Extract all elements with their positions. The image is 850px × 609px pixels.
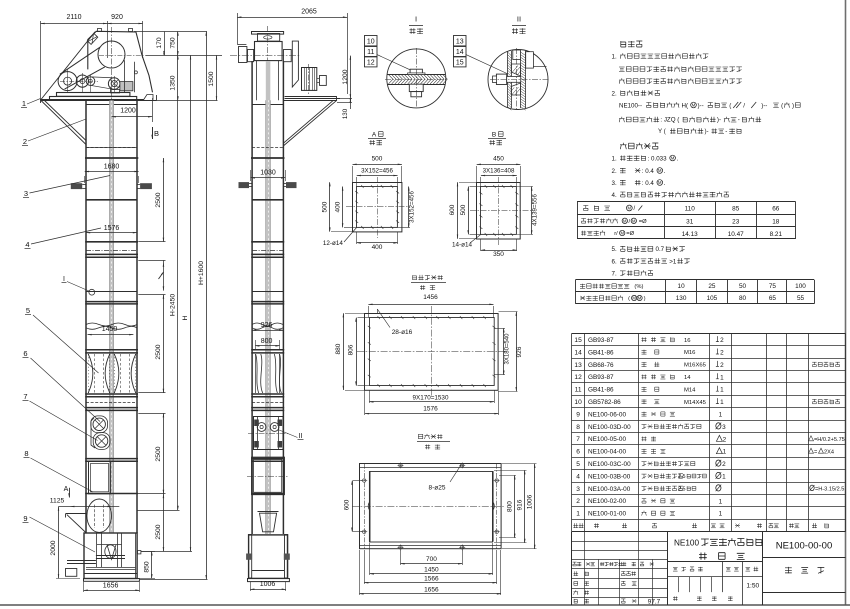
- svg-text:6: 6: [576, 449, 580, 456]
- svg-text:14: 14: [684, 375, 691, 381]
- svg-text:66: 66: [772, 206, 780, 213]
- svg-text:M: M: [638, 296, 642, 301]
- svg-text:3: 3: [576, 486, 580, 493]
- svg-text:3X180=540: 3X180=540: [504, 333, 510, 365]
- svg-text:14.13: 14.13: [682, 231, 698, 238]
- svg-text:806: 806: [348, 344, 355, 355]
- svg-text:B: B: [154, 129, 159, 138]
- svg-text:1: 1: [722, 474, 726, 481]
- svg-text:M16X65: M16X65: [684, 363, 707, 369]
- svg-text:12: 12: [367, 59, 375, 66]
- svg-text:1350: 1350: [170, 75, 177, 90]
- svg-text:M: M: [658, 168, 662, 173]
- svg-text:4: 4: [25, 240, 29, 249]
- svg-text:NE100-03D-00: NE100-03D-00: [588, 424, 631, 431]
- svg-text:I: I: [415, 15, 417, 24]
- svg-text:23: 23: [732, 219, 740, 226]
- svg-text:600: 600: [344, 499, 351, 510]
- svg-text:2110: 2110: [66, 14, 81, 21]
- svg-text:1: 1: [723, 449, 727, 456]
- svg-text:GB68-76: GB68-76: [588, 362, 614, 369]
- svg-text:750: 750: [170, 37, 177, 49]
- svg-text:): ): [792, 103, 794, 110]
- svg-text:NE100-04-00: NE100-04-00: [588, 449, 626, 456]
- svg-text:7.: 7.: [612, 270, 617, 277]
- svg-text:6: 6: [23, 349, 27, 358]
- svg-text:1: 1: [720, 387, 724, 394]
- svg-text:=H/0.2+5.75: =H/0.2+5.75: [814, 437, 845, 443]
- svg-text:100: 100: [795, 283, 806, 290]
- svg-text:9: 9: [576, 411, 580, 418]
- svg-text:3X136=408: 3X136=408: [483, 167, 515, 174]
- svg-text:M: M: [692, 103, 696, 108]
- svg-text:4X139=556: 4X139=556: [531, 194, 538, 226]
- svg-text:75: 75: [769, 283, 777, 290]
- svg-text:1576: 1576: [423, 406, 438, 413]
- svg-text:2000: 2000: [50, 540, 57, 555]
- svg-text:)--: )--: [698, 103, 704, 110]
- svg-text:2: 2: [720, 350, 724, 357]
- svg-text:1680: 1680: [104, 164, 120, 171]
- svg-text:800: 800: [507, 501, 514, 512]
- svg-text:1: 1: [719, 412, 723, 419]
- svg-text:)-: )-: [705, 128, 709, 135]
- svg-text:1: 1: [719, 498, 723, 505]
- svg-text:GB93-87: GB93-87: [588, 337, 614, 344]
- svg-text:2: 2: [720, 337, 724, 344]
- svg-text:H-2450: H-2450: [170, 294, 177, 317]
- svg-text:350: 350: [493, 251, 504, 258]
- svg-text:1: 1: [720, 374, 724, 381]
- svg-text:II: II: [517, 15, 521, 24]
- svg-text:=Ø: =Ø: [639, 219, 647, 225]
- svg-text:M: M: [632, 218, 636, 223]
- svg-text:NE100-03C-00: NE100-03C-00: [588, 461, 631, 468]
- svg-text:916: 916: [517, 499, 524, 510]
- svg-text:=Ø: =Ø: [626, 231, 634, 237]
- svg-text:M14X45: M14X45: [684, 400, 707, 406]
- svg-text:3X152=456: 3X152=456: [409, 191, 416, 223]
- svg-text:5.: 5.: [612, 246, 617, 253]
- svg-text:1576: 1576: [104, 225, 120, 232]
- svg-text:(%): (%): [634, 284, 643, 290]
- svg-text:3.: 3.: [612, 180, 617, 187]
- svg-text:9: 9: [23, 514, 27, 523]
- svg-text:1006: 1006: [260, 581, 276, 588]
- svg-text:r/: r/: [614, 231, 618, 237]
- svg-text:500: 500: [372, 156, 383, 163]
- svg-text:=H-3.15/2.5: =H-3.15/2.5: [815, 487, 844, 493]
- svg-text:110: 110: [685, 206, 696, 213]
- svg-text:Y (: Y (: [658, 128, 667, 135]
- svg-text:97.7: 97.7: [648, 598, 661, 605]
- svg-text:500: 500: [460, 204, 467, 215]
- svg-text:: 0.033: : 0.033: [648, 156, 667, 163]
- svg-text:5: 5: [26, 306, 30, 315]
- svg-text:2.5: 2.5: [678, 487, 686, 493]
- svg-text:400: 400: [372, 244, 383, 251]
- svg-text:M: M: [671, 156, 675, 161]
- svg-text:-: -: [738, 117, 740, 124]
- svg-text:1456: 1456: [423, 294, 438, 301]
- svg-text:2500: 2500: [155, 344, 162, 359]
- svg-text:15: 15: [456, 59, 464, 66]
- svg-text:85: 85: [732, 206, 740, 213]
- svg-text:13: 13: [456, 39, 464, 46]
- svg-text:1.: 1.: [612, 54, 617, 61]
- svg-text:: 0.4: : 0.4: [642, 168, 655, 175]
- svg-text:65: 65: [769, 295, 777, 302]
- svg-text:130: 130: [342, 108, 349, 119]
- svg-text:880: 880: [335, 343, 342, 354]
- svg-text:NE100-05-00: NE100-05-00: [588, 436, 626, 443]
- svg-text:2: 2: [576, 498, 580, 505]
- svg-text:12: 12: [574, 374, 582, 381]
- svg-text:16: 16: [684, 338, 691, 344]
- svg-text:10.47: 10.47: [728, 231, 744, 238]
- svg-text:11: 11: [575, 387, 582, 394]
- svg-text:.: .: [677, 156, 679, 163]
- svg-text:1.: 1.: [612, 156, 617, 163]
- svg-text:2: 2: [720, 362, 724, 369]
- svg-text:GB5782-86: GB5782-86: [588, 399, 621, 406]
- svg-text:NE100-03A-00: NE100-03A-00: [588, 486, 631, 493]
- svg-text:3: 3: [24, 189, 28, 198]
- svg-text:25: 25: [708, 283, 716, 290]
- svg-text:>1: >1: [669, 258, 677, 265]
- svg-text:2500: 2500: [155, 192, 162, 207]
- svg-text:2X4: 2X4: [824, 449, 834, 455]
- svg-text:M14: M14: [684, 387, 696, 393]
- svg-text:4.: 4.: [612, 192, 617, 199]
- svg-text:M: M: [628, 206, 632, 211]
- svg-text:14: 14: [574, 349, 582, 356]
- svg-text:1656: 1656: [103, 582, 119, 589]
- svg-text:14-ø14: 14-ø14: [452, 241, 472, 248]
- svg-text:1030: 1030: [260, 169, 276, 176]
- svg-text:)-: )-: [717, 117, 721, 124]
- svg-text:1200: 1200: [342, 69, 349, 84]
- svg-text:GB93-87: GB93-87: [588, 374, 614, 381]
- svg-text:2065: 2065: [301, 9, 317, 16]
- svg-text:2500: 2500: [155, 524, 162, 539]
- svg-text:I: I: [63, 276, 65, 283]
- svg-text:: JZQ (: : JZQ (: [660, 117, 680, 124]
- svg-text:31: 31: [686, 219, 694, 226]
- svg-text:50: 50: [739, 283, 747, 290]
- svg-text:2.: 2.: [612, 91, 617, 98]
- svg-text:7: 7: [576, 436, 580, 443]
- svg-text:2: 2: [23, 137, 27, 146]
- svg-text:1656: 1656: [424, 586, 439, 593]
- svg-text:28-ø16: 28-ø16: [392, 329, 413, 336]
- svg-text:M: M: [620, 231, 624, 236]
- svg-text:GB41-86: GB41-86: [588, 349, 614, 356]
- svg-text:.: .: [664, 180, 666, 187]
- svg-text:926: 926: [516, 346, 523, 357]
- svg-text:(: (: [628, 296, 630, 302]
- svg-text:55: 55: [797, 295, 805, 302]
- svg-text:1006: 1006: [526, 494, 533, 509]
- svg-text:18: 18: [772, 219, 780, 226]
- svg-text:/: /: [743, 103, 745, 110]
- svg-text:.: .: [664, 168, 666, 175]
- svg-text:170: 170: [156, 37, 163, 49]
- svg-text:A: A: [64, 486, 69, 493]
- svg-text:2500: 2500: [155, 446, 162, 461]
- svg-text:8: 8: [24, 449, 28, 458]
- svg-text:NE100-02-00: NE100-02-00: [588, 498, 626, 505]
- svg-text:15: 15: [574, 337, 582, 344]
- svg-text:2: 2: [722, 461, 726, 468]
- svg-text:8.21: 8.21: [770, 231, 783, 238]
- svg-text:130: 130: [676, 295, 687, 302]
- svg-text:800: 800: [261, 338, 273, 345]
- svg-text:400: 400: [334, 201, 341, 212]
- svg-text:10: 10: [367, 39, 375, 46]
- svg-text:0.7: 0.7: [656, 246, 665, 253]
- svg-text:NE100-03B-00: NE100-03B-00: [588, 473, 631, 480]
- svg-text:105: 105: [707, 295, 718, 302]
- svg-text:NE100-06-00: NE100-06-00: [588, 411, 626, 418]
- svg-text:GB41-86: GB41-86: [588, 387, 614, 394]
- svg-text:M: M: [658, 180, 662, 185]
- svg-text:NE100-00-00: NE100-00-00: [776, 541, 833, 552]
- svg-text:7: 7: [23, 392, 27, 401]
- svg-text:2.: 2.: [612, 168, 617, 175]
- svg-text:5: 5: [576, 461, 580, 468]
- svg-text:1500: 1500: [208, 71, 215, 86]
- svg-text:3X152=456: 3X152=456: [361, 167, 393, 174]
- svg-text:H(: H(: [682, 103, 689, 110]
- svg-text:4: 4: [576, 473, 580, 480]
- svg-text:3: 3: [722, 424, 726, 431]
- svg-text:8-ø25: 8-ø25: [429, 484, 446, 491]
- svg-text:1:50: 1:50: [746, 583, 759, 590]
- svg-text:B: B: [492, 132, 496, 139]
- svg-text:=: =: [814, 449, 817, 455]
- svg-text:8: 8: [576, 424, 580, 431]
- svg-text:1125: 1125: [50, 498, 65, 505]
- svg-text:920: 920: [111, 14, 123, 21]
- svg-text:80: 80: [739, 295, 747, 302]
- svg-text:12-: 12-: [323, 240, 332, 247]
- svg-text:700: 700: [426, 556, 437, 563]
- svg-text:NE100--: NE100--: [619, 103, 642, 110]
- svg-text:1450: 1450: [102, 326, 118, 333]
- svg-text:1200: 1200: [120, 108, 136, 115]
- svg-text:H: H: [182, 315, 189, 320]
- svg-text:M: M: [623, 218, 627, 223]
- svg-text:-: -: [725, 128, 727, 135]
- svg-text:10: 10: [574, 399, 582, 406]
- svg-text:M16: M16: [684, 350, 696, 356]
- svg-text:ø14: ø14: [332, 240, 343, 247]
- svg-text:11: 11: [367, 49, 374, 56]
- svg-text:1.5: 1.5: [678, 474, 686, 480]
- svg-text:1: 1: [22, 99, 26, 108]
- svg-text:9X170=1530: 9X170=1530: [413, 394, 449, 401]
- svg-text:: 0.4: : 0.4: [642, 180, 655, 187]
- svg-text:13: 13: [574, 362, 582, 369]
- svg-text:H+1600: H+1600: [198, 261, 205, 285]
- svg-text:1566: 1566: [424, 575, 439, 582]
- svg-text:500: 500: [322, 201, 329, 212]
- svg-text:NE100: NE100: [674, 539, 699, 548]
- svg-text:1450: 1450: [424, 566, 439, 573]
- svg-text:6.: 6.: [612, 258, 617, 265]
- svg-text:1: 1: [720, 399, 724, 406]
- svg-text:14: 14: [456, 49, 464, 56]
- svg-text:)--: )--: [761, 103, 767, 110]
- svg-text:2: 2: [723, 436, 727, 443]
- svg-text:450: 450: [493, 156, 504, 163]
- svg-text:600: 600: [449, 204, 456, 215]
- svg-text:II: II: [299, 433, 303, 440]
- svg-text:10: 10: [678, 283, 686, 290]
- svg-text:): ): [644, 296, 646, 302]
- svg-text:1: 1: [719, 511, 723, 518]
- svg-text:M: M: [632, 296, 636, 301]
- svg-text:NE100-01-00: NE100-01-00: [588, 511, 626, 518]
- svg-text:1: 1: [576, 511, 580, 518]
- svg-text:A: A: [372, 132, 377, 139]
- svg-text:850: 850: [143, 561, 150, 573]
